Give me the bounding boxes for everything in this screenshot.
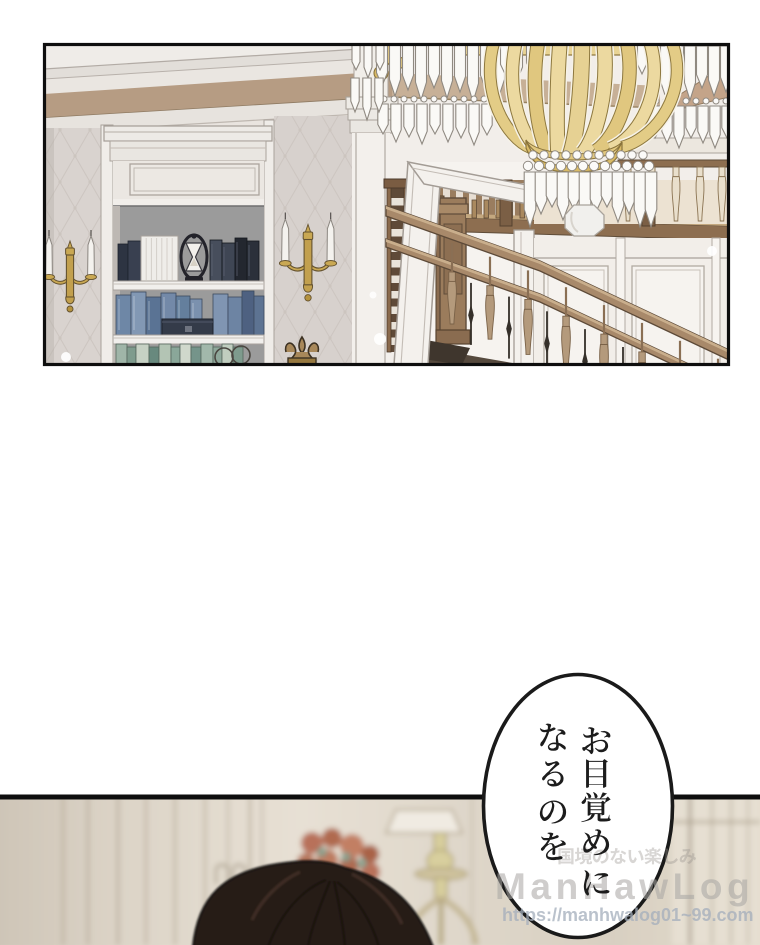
svg-text:https://manhwalog01~99.com: https://manhwalog01~99.com [502, 905, 754, 925]
svg-text:ManHawLog: ManHawLog [495, 866, 754, 907]
